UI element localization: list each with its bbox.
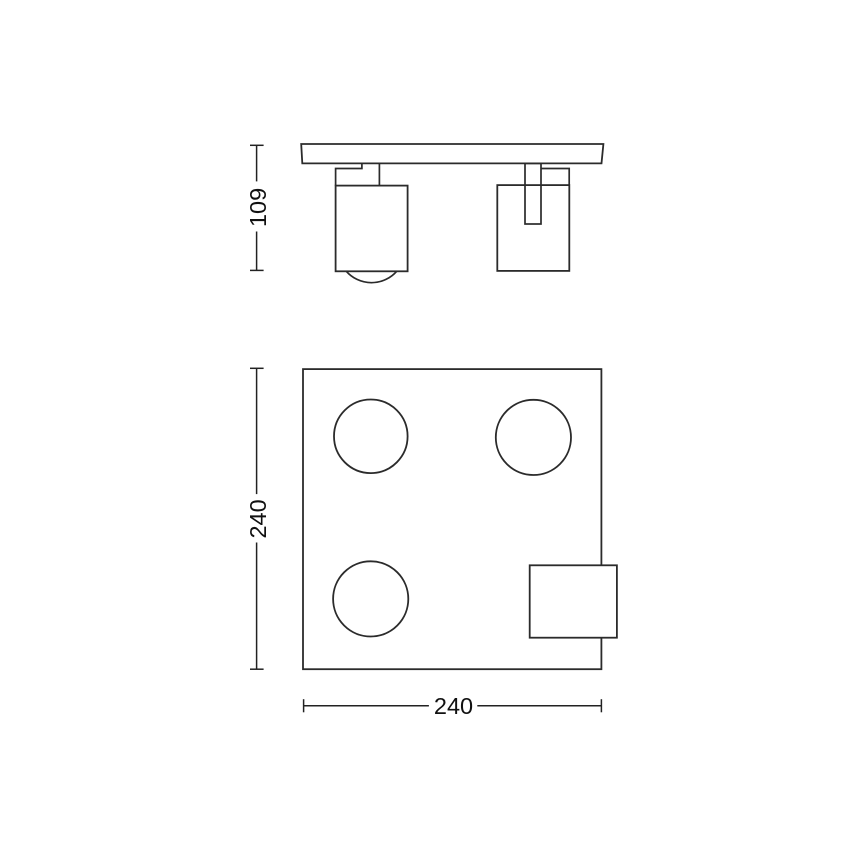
svg-text:240: 240 (245, 499, 271, 538)
svg-text:240: 240 (434, 693, 473, 719)
svg-text:109: 109 (245, 188, 271, 227)
